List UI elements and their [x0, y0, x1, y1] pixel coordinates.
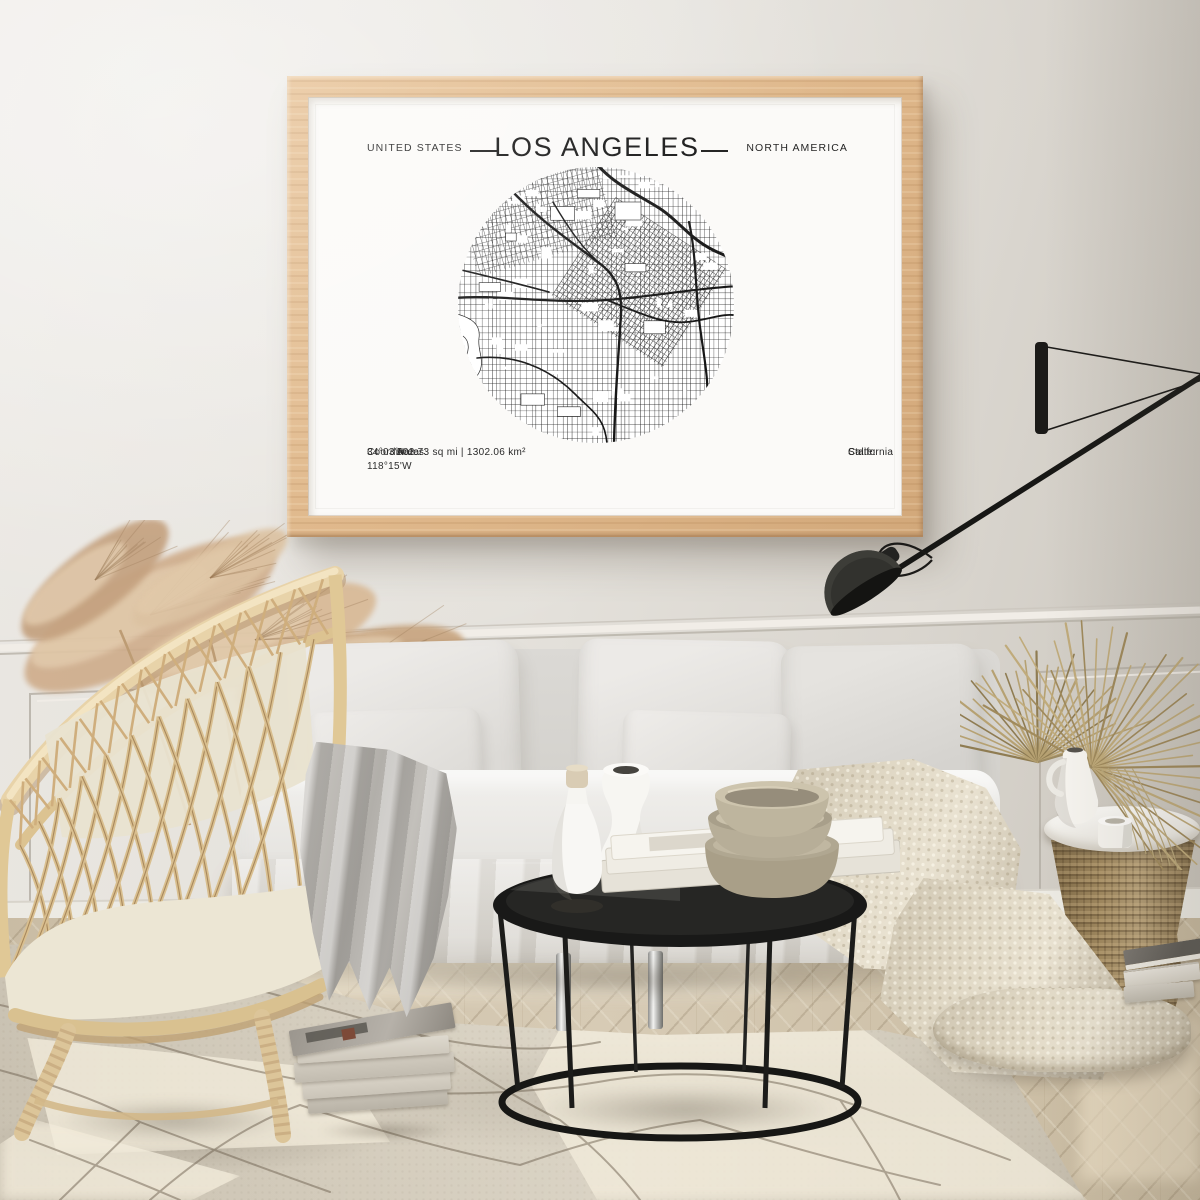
- lamp-wall-bracket: [1035, 342, 1048, 434]
- book-stack-right: [1124, 944, 1200, 1036]
- poster-continent-label: NORTH AMERICA: [746, 142, 848, 154]
- coffee-table: [460, 740, 900, 1160]
- city-map-circle: [457, 166, 735, 444]
- living-room-photo: UNITED STATES LOS ANGELES NORTH AMERICA …: [0, 0, 1200, 1200]
- lamp-head: [809, 531, 912, 622]
- title-dash-right: [701, 150, 728, 152]
- poster-title: LOS ANGELES: [397, 132, 797, 163]
- title-dash-left: [470, 150, 497, 152]
- area-value: 502.73 sq mi | 1302.06 km²: [397, 446, 526, 460]
